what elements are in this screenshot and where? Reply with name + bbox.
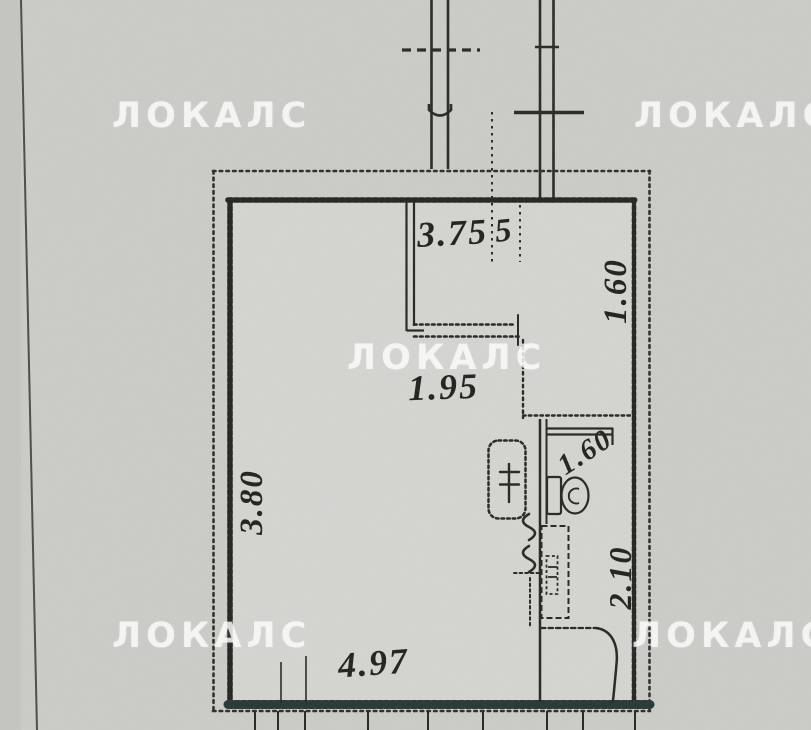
dim-label-passage: 1.95: [407, 365, 479, 409]
page-fold-shade: [0, 0, 21, 730]
paper-edge-line: [21, 0, 37, 730]
scanned-floorplan-page: ЛОКАЛС ЛОКАЛС ЛОКАЛС ЛОКАЛС ЛОКАЛС 3.75 …: [0, 0, 811, 730]
dim-label-bath-depth: 2.10: [602, 505, 639, 650]
dim-label-room-depth: 3.80: [234, 432, 271, 572]
riser-lines-left: [429, 0, 451, 169]
dim-label-niche-width: 3.75: [416, 210, 489, 256]
dim-label-closet-depth: 1.60: [598, 226, 635, 356]
watermark: ЛОКАЛС: [634, 96, 811, 136]
dim-label-niche-digit: 5: [493, 212, 515, 251]
watermark: ЛОКАЛС: [112, 616, 311, 656]
dim-label-room-width: 4.97: [337, 640, 411, 687]
watermark: ЛОКАЛС: [632, 616, 811, 656]
watermark: ЛОКАЛС: [112, 96, 311, 136]
